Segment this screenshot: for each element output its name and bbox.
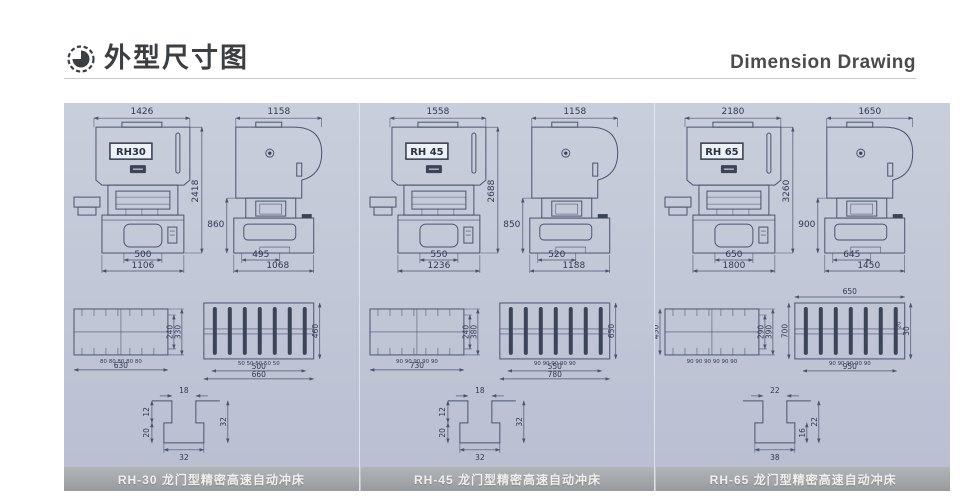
dim-tslot-top: 18 bbox=[475, 386, 485, 395]
dim-side-height: 900 bbox=[799, 220, 816, 230]
dim-side-bolster: 495 bbox=[252, 250, 269, 260]
dim-front-base: 1800 bbox=[723, 261, 746, 271]
dim-side-base: 1188 bbox=[562, 261, 585, 271]
dim-tslot-right-a: 32 bbox=[219, 417, 228, 427]
model-caption: RH-30 龙门型精密高速自动冲床 bbox=[64, 467, 359, 491]
drawing-panel: 1426 RH30 bbox=[64, 103, 950, 491]
machine-column: 1426 RH30 bbox=[64, 103, 359, 491]
dim-plate-left-outer: 380 bbox=[469, 325, 478, 340]
dim-tslot-left-a: 12 bbox=[438, 407, 447, 417]
bolster-top-view-right: 460 50 50 50 50 50 500 660 bbox=[204, 303, 320, 379]
bolster-top-view-right: 650 700 30 20 90 90 90 90 90 bbox=[781, 287, 912, 371]
dim-front-width: 2180 bbox=[722, 107, 745, 117]
dim-plate-left-outer: 330 bbox=[173, 325, 182, 340]
model-caption: RH-45 龙门型精密高速自动冲床 bbox=[360, 467, 655, 491]
model-caption: RH-65 龙门型精密高速自动冲床 bbox=[655, 467, 950, 491]
page-subtitle-en: Dimension Drawing bbox=[730, 52, 916, 74]
t-slot-detail: 18 12 20 32 32 bbox=[438, 386, 524, 462]
dim-front-width: 1558 bbox=[426, 107, 449, 117]
dim-plate-right-bottom-b: 660 bbox=[252, 370, 267, 379]
model-plate: RH 65 bbox=[706, 147, 739, 158]
dim-plate-left-left: 450 bbox=[655, 325, 660, 340]
dim-side-height: 860 bbox=[207, 220, 224, 230]
dim-plate-right-left: 700 bbox=[781, 324, 790, 339]
dim-side-bolster: 645 bbox=[844, 250, 861, 260]
page-header: 外型尺寸图 Dimension Drawing bbox=[64, 42, 916, 79]
dim-side-bolster: 520 bbox=[548, 250, 565, 260]
pie-chart-icon bbox=[66, 44, 96, 74]
dim-tslot-top: 18 bbox=[179, 386, 189, 395]
side-view: 1650 900 bbox=[799, 107, 913, 273]
dim-tslot-right-b: 16 bbox=[798, 428, 807, 438]
dim-front-height: 2418 bbox=[191, 179, 201, 202]
dimension-drawing: 1558 RH 45 bbox=[360, 103, 655, 467]
dim-front-width: 1426 bbox=[130, 107, 153, 117]
dim-tslot-left-a: 12 bbox=[142, 407, 151, 417]
side-view: 1158 850 bbox=[503, 107, 617, 273]
t-slot-detail: 22 22 16 38 bbox=[743, 386, 819, 462]
bolster-top-view-right: 650 90 90 90 90 90 550 780 bbox=[500, 303, 616, 379]
model-plate: RH 45 bbox=[410, 147, 443, 158]
model-plate: RH30 bbox=[116, 147, 146, 158]
machine-column: 2180 RH 65 bbox=[654, 103, 950, 491]
dim-plate-right-small: 20 bbox=[897, 321, 903, 328]
dim-front-bolster: 500 bbox=[134, 250, 151, 260]
side-view: 1158 860 bbox=[207, 107, 321, 273]
dim-plate-left-spacing: 90 90 90 90 90 90 bbox=[687, 359, 738, 365]
t-slot-detail: 18 12 20 32 32 bbox=[142, 386, 228, 462]
dimension-drawing: 2180 RH 65 bbox=[655, 103, 950, 467]
dim-tslot-left-b: 20 bbox=[438, 428, 447, 438]
bolster-top-view-left: 240 380 90 90 90 90 90 730 bbox=[370, 309, 480, 370]
dim-side-base: 1450 bbox=[858, 261, 881, 271]
dim-tslot-right-a: 32 bbox=[514, 417, 523, 427]
dim-tslot-bottom: 38 bbox=[770, 453, 780, 462]
dim-plate-right-right: 650 bbox=[607, 324, 616, 339]
front-view: 2180 RH 65 bbox=[665, 107, 793, 273]
dim-tslot-bottom: 32 bbox=[179, 453, 189, 462]
front-view: 1558 RH 45 bbox=[370, 107, 498, 273]
dim-side-height: 850 bbox=[503, 220, 520, 230]
dim-plate-right-bottom-a: 950 bbox=[843, 362, 858, 371]
dim-side-width: 1158 bbox=[563, 107, 586, 117]
dim-plate-left-bottom: 630 bbox=[114, 361, 129, 370]
dimension-drawing: 1426 RH30 bbox=[64, 103, 359, 467]
page-title: 外型尺寸图 bbox=[104, 42, 249, 74]
dim-tslot-bottom: 32 bbox=[475, 453, 485, 462]
bolster-top-view-left: 450 290 390 90 90 90 90 90 90 bbox=[655, 309, 775, 365]
dim-side-width: 1650 bbox=[859, 107, 882, 117]
dim-side-width: 1158 bbox=[267, 107, 290, 117]
dim-front-height: 2688 bbox=[487, 179, 497, 202]
dim-plate-right-right: 30 bbox=[903, 326, 912, 336]
dim-front-height: 3260 bbox=[782, 179, 792, 202]
dim-plate-left-bottom: 730 bbox=[409, 361, 424, 370]
dim-front-base: 1236 bbox=[427, 261, 450, 271]
dim-plate-right-right: 460 bbox=[311, 324, 320, 339]
dim-side-base: 1068 bbox=[266, 261, 289, 271]
front-view: 1426 RH30 bbox=[74, 107, 202, 273]
dim-front-base: 1106 bbox=[131, 261, 154, 271]
dim-tslot-top: 22 bbox=[770, 386, 780, 395]
machine-column: 1558 RH 45 bbox=[359, 103, 655, 491]
dim-plate-right-bottom-b: 780 bbox=[547, 370, 562, 379]
dim-front-bolster: 550 bbox=[430, 250, 447, 260]
dim-plate-right-top: 650 bbox=[843, 287, 858, 296]
dim-tslot-left-b: 20 bbox=[142, 428, 151, 438]
dim-front-bolster: 650 bbox=[726, 250, 743, 260]
bolster-top-view-left: 240 330 80 80 80 80 80 630 bbox=[74, 309, 184, 370]
dim-plate-left-outer: 390 bbox=[765, 325, 774, 340]
dim-tslot-right-a: 22 bbox=[810, 417, 819, 427]
